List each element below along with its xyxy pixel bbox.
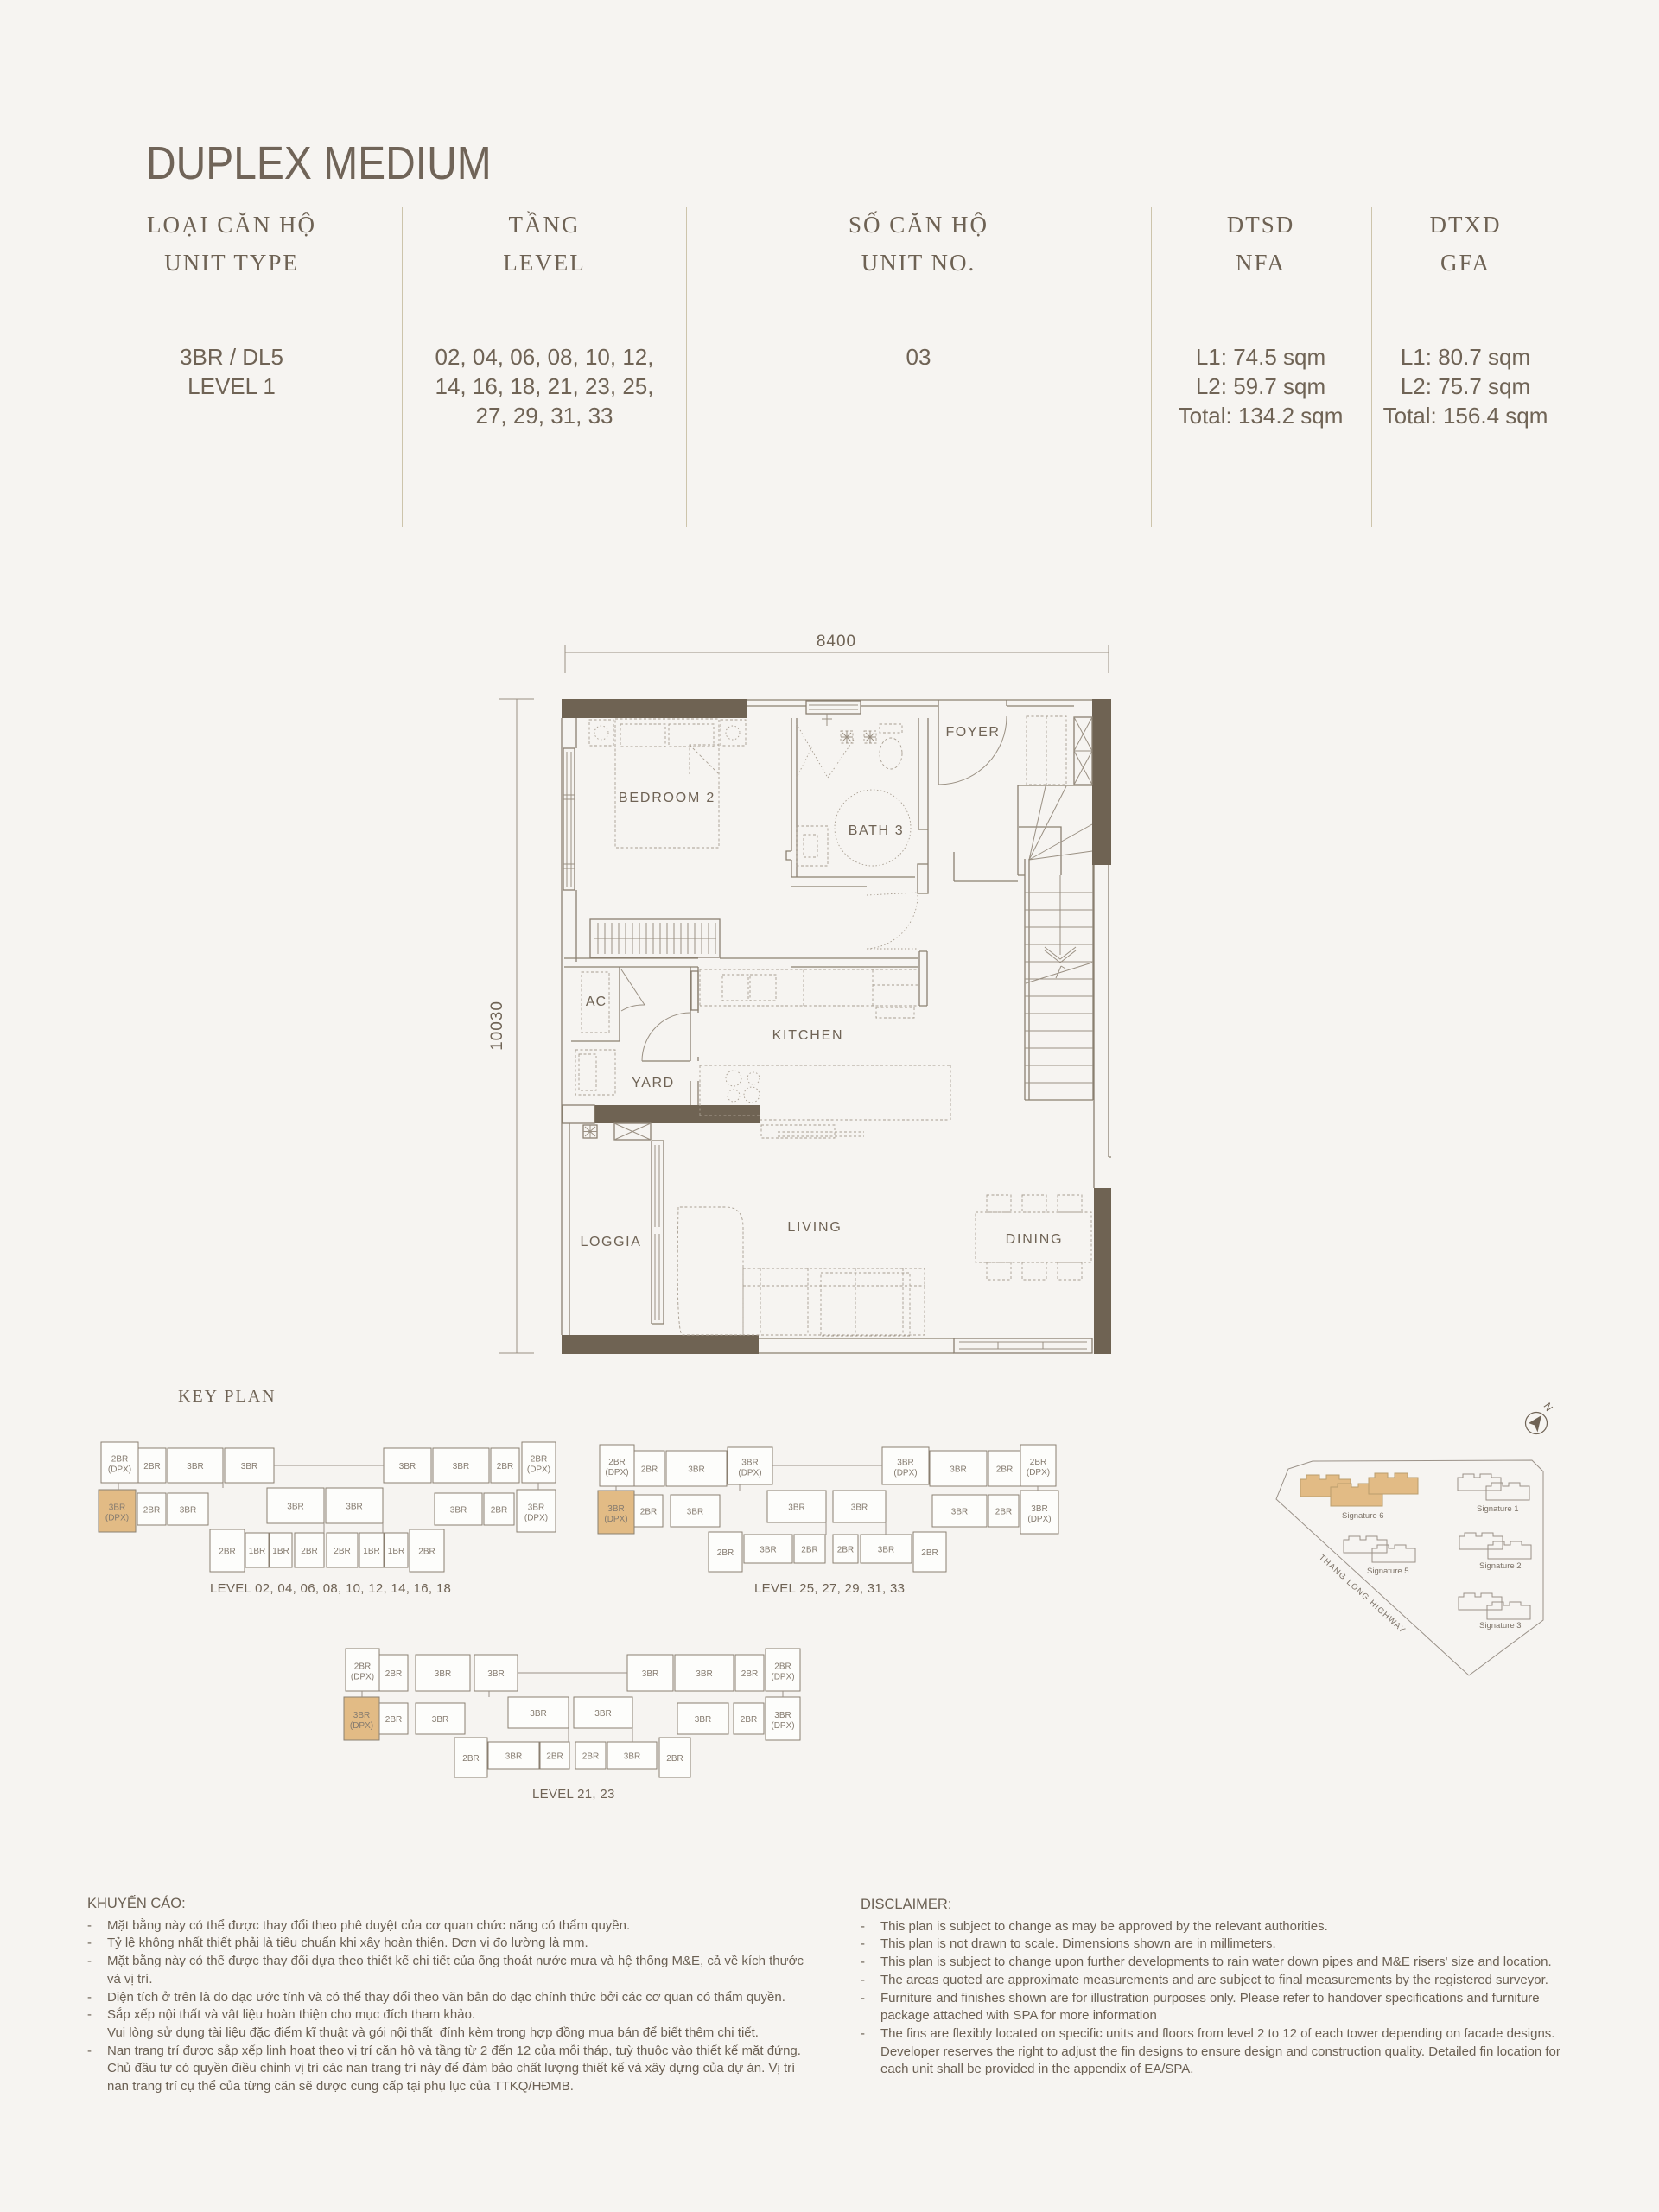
svg-text:(DPX): (DPX) (351, 1673, 374, 1682)
svg-text:2BR: 2BR (385, 1715, 402, 1725)
svg-text:3BR: 3BR (594, 1709, 611, 1719)
svg-text:(DPX): (DPX) (604, 1515, 627, 1524)
svg-text:(DPX): (DPX) (771, 1673, 794, 1682)
svg-text:3BR: 3BR (760, 1546, 776, 1555)
svg-text:1BR: 1BR (249, 1547, 265, 1556)
svg-text:(DPX): (DPX) (605, 1468, 628, 1478)
svg-text:3BR: 3BR (241, 1462, 257, 1471)
svg-text:1BR: 1BR (363, 1547, 379, 1556)
svg-text:(DPX): (DPX) (893, 1469, 917, 1478)
svg-text:3BR: 3BR (851, 1503, 868, 1513)
svg-text:3BR: 3BR (688, 1465, 704, 1475)
svg-text:2BR: 2BR (301, 1547, 317, 1556)
svg-text:2BR: 2BR (111, 1455, 128, 1465)
svg-text:3BR: 3BR (346, 1503, 362, 1512)
svg-text:(DPX): (DPX) (350, 1721, 373, 1731)
svg-text:2BR: 2BR (418, 1548, 435, 1557)
svg-text:2BR: 2BR (219, 1548, 235, 1557)
svg-text:2BR: 2BR (334, 1547, 350, 1556)
svg-text:3BR: 3BR (528, 1503, 544, 1513)
svg-text:3BR: 3BR (450, 1506, 467, 1516)
svg-text:2BR: 2BR (995, 1508, 1012, 1517)
svg-text:(DPX): (DPX) (738, 1469, 761, 1478)
svg-text:THANG LONG HIGHWAY: THANG LONG HIGHWAY (1317, 1553, 1408, 1636)
svg-text:YARD: YARD (632, 1076, 675, 1090)
svg-text:3BR: 3BR (878, 1546, 894, 1555)
svg-text:3BR: 3BR (696, 1669, 712, 1679)
svg-text:LOGGIA: LOGGIA (581, 1235, 642, 1249)
svg-text:3BR: 3BR (687, 1508, 703, 1517)
svg-text:2BR: 2BR (717, 1548, 734, 1558)
svg-text:2BR: 2BR (741, 1669, 758, 1679)
svg-text:Signature 5: Signature 5 (1367, 1567, 1409, 1576)
svg-text:FOYER: FOYER (945, 725, 1000, 740)
svg-text:KITCHEN: KITCHEN (772, 1028, 844, 1043)
svg-text:3BR: 3BR (435, 1669, 451, 1679)
svg-text:3BR: 3BR (950, 1465, 966, 1475)
svg-text:N: N (1541, 1401, 1555, 1414)
svg-text:BEDROOM 2: BEDROOM 2 (619, 791, 715, 805)
svg-text:3BR: 3BR (180, 1506, 196, 1516)
svg-text:3BR: 3BR (788, 1503, 804, 1513)
svg-text:3BR: 3BR (624, 1752, 640, 1762)
svg-text:LIVING: LIVING (787, 1220, 842, 1235)
svg-text:2BR: 2BR (1030, 1458, 1046, 1467)
svg-text:LEVEL 25, 27, 29, 31, 33: LEVEL 25, 27, 29, 31, 33 (754, 1581, 905, 1596)
svg-text:3BR: 3BR (353, 1711, 370, 1720)
svg-text:2BR: 2BR (354, 1662, 371, 1672)
svg-text:2BR: 2BR (640, 1508, 657, 1517)
svg-text:2BR: 2BR (666, 1754, 683, 1764)
svg-text:Signature 1: Signature 1 (1477, 1504, 1519, 1514)
svg-text:Signature 2: Signature 2 (1479, 1561, 1522, 1571)
svg-text:DINING: DINING (1006, 1232, 1064, 1247)
svg-text:3BR: 3BR (607, 1504, 624, 1514)
svg-text:2BR: 2BR (741, 1715, 757, 1725)
svg-text:2BR: 2BR (497, 1462, 513, 1471)
svg-text:2BR: 2BR (996, 1465, 1013, 1475)
svg-text:10030: 10030 (488, 1001, 506, 1051)
svg-text:2BR: 2BR (531, 1455, 547, 1465)
svg-text:3BR: 3BR (187, 1462, 203, 1471)
svg-text:2BR: 2BR (641, 1465, 658, 1475)
svg-text:3BR: 3BR (432, 1715, 448, 1725)
svg-text:3BR: 3BR (695, 1715, 711, 1725)
svg-text:3BR: 3BR (1031, 1504, 1047, 1514)
svg-text:3BR: 3BR (530, 1709, 546, 1719)
svg-text:2BR: 2BR (385, 1669, 402, 1679)
svg-text:(DPX): (DPX) (1027, 1515, 1051, 1524)
svg-text:3BR: 3BR (951, 1508, 968, 1517)
svg-text:Signature 6: Signature 6 (1342, 1511, 1384, 1521)
svg-text:2BR: 2BR (462, 1754, 479, 1764)
svg-text:2BR: 2BR (921, 1548, 938, 1558)
svg-text:2BR: 2BR (143, 1462, 160, 1471)
svg-text:Signature 3: Signature 3 (1479, 1621, 1522, 1630)
svg-text:3BR: 3BR (487, 1669, 504, 1679)
svg-text:2BR: 2BR (837, 1546, 854, 1555)
svg-text:3BR: 3BR (287, 1503, 303, 1512)
svg-text:(DPX): (DPX) (771, 1721, 794, 1731)
svg-text:AC: AC (586, 995, 607, 1009)
svg-text:2BR: 2BR (774, 1662, 791, 1672)
svg-text:3BR: 3BR (774, 1711, 791, 1720)
svg-text:(DPX): (DPX) (524, 1514, 548, 1523)
svg-text:3BR: 3BR (453, 1462, 469, 1471)
svg-text:2BR: 2BR (608, 1458, 625, 1467)
svg-text:BATH 3: BATH 3 (849, 823, 904, 838)
svg-text:8400: 8400 (817, 632, 856, 651)
svg-text:3BR: 3BR (505, 1752, 522, 1762)
svg-text:3BR: 3BR (109, 1503, 125, 1513)
svg-text:2BR: 2BR (801, 1546, 817, 1555)
svg-text:(DPX): (DPX) (105, 1514, 129, 1523)
svg-text:2BR: 2BR (491, 1506, 507, 1516)
svg-text:3BR: 3BR (399, 1462, 416, 1471)
svg-text:(DPX): (DPX) (108, 1465, 131, 1475)
svg-text:LEVEL 02, 04, 06, 08, 10, 12,: LEVEL 02, 04, 06, 08, 10, 12, 14, 16, 18 (210, 1581, 451, 1596)
svg-text:LEVEL 21, 23: LEVEL 21, 23 (532, 1787, 615, 1802)
svg-text:3BR: 3BR (897, 1459, 913, 1468)
svg-text:2BR: 2BR (582, 1752, 599, 1762)
svg-text:2BR: 2BR (546, 1752, 563, 1762)
svg-text:3BR: 3BR (741, 1459, 758, 1468)
svg-text:2BR: 2BR (143, 1506, 160, 1516)
svg-text:3BR: 3BR (642, 1669, 658, 1679)
svg-text:1BR: 1BR (388, 1547, 404, 1556)
svg-text:KEY PLAN: KEY PLAN (178, 1387, 276, 1406)
svg-text:1BR: 1BR (272, 1547, 289, 1556)
svg-text:(DPX): (DPX) (1027, 1468, 1050, 1478)
svg-text:(DPX): (DPX) (527, 1465, 550, 1475)
